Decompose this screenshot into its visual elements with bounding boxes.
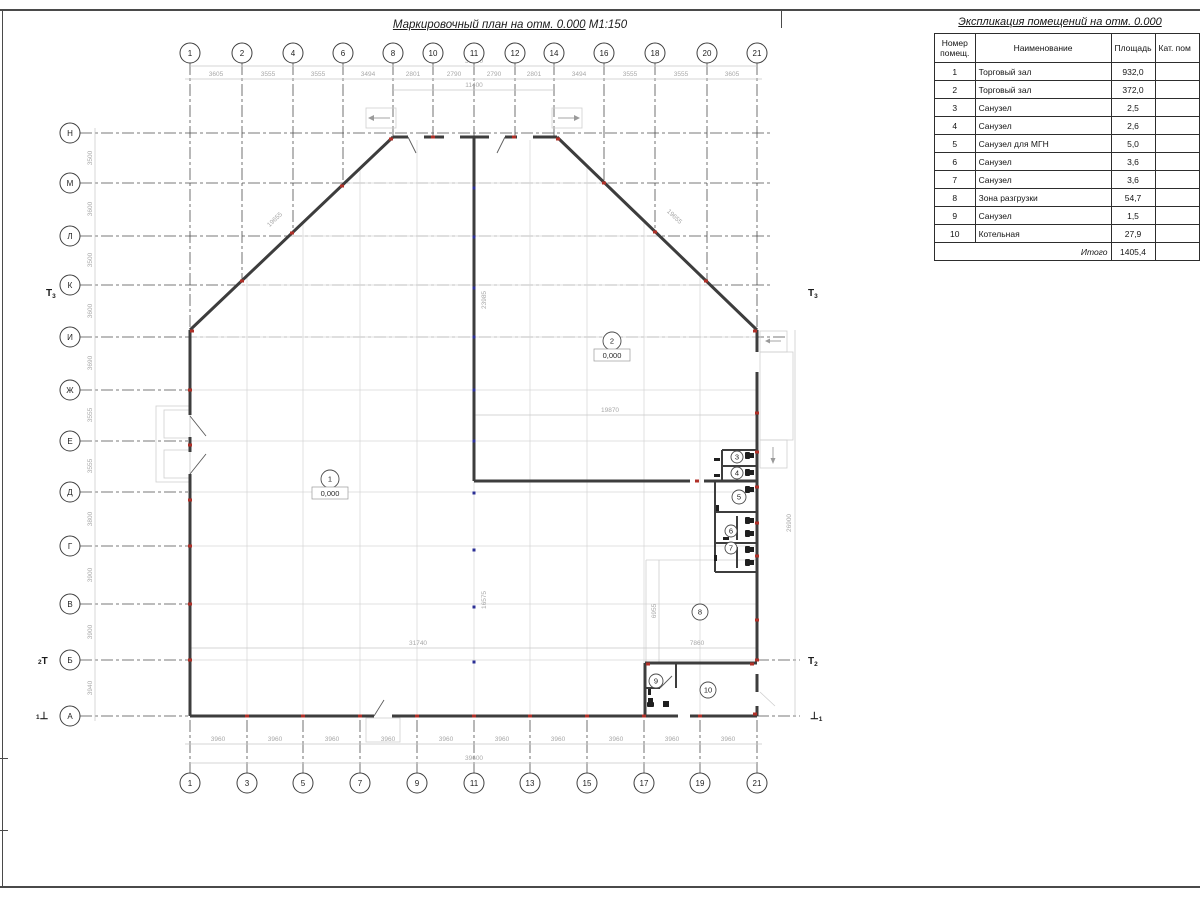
dimension-text: 3960: [495, 736, 510, 743]
marking-point-red: [753, 330, 757, 333]
dimension-text: 3960: [211, 736, 226, 743]
axis-label: 18: [651, 49, 660, 58]
marking-point-red: [290, 232, 294, 235]
room-name-cell: Котельная: [975, 225, 1111, 243]
room-number: 8: [698, 608, 702, 617]
marking-point-red: [750, 663, 754, 666]
marking-point-red: [431, 136, 435, 139]
total-category-cell: [1155, 243, 1199, 261]
marking-point-red: [755, 486, 759, 489]
room-number-cell: 5: [935, 135, 976, 153]
marking-point-red: [188, 444, 192, 447]
elevation-value: 0,000: [321, 489, 340, 498]
dimension-text: 23985: [481, 291, 488, 309]
marking-point-red: [755, 412, 759, 415]
marking-point-red: [755, 659, 759, 662]
dimension-text: 19655: [266, 211, 284, 229]
axis-label: 11: [470, 49, 479, 58]
room-number: 2: [610, 337, 614, 346]
axis-label: К: [68, 281, 73, 290]
sheet-frame-left: [2, 10, 3, 886]
room-number: 10: [704, 686, 712, 695]
room-number: 7: [729, 544, 733, 553]
marking-point-red: [301, 715, 305, 718]
room-number: 6: [729, 527, 733, 536]
marking-point-blue: [473, 492, 476, 495]
axis-label: 12: [511, 49, 520, 58]
dimension-text: 3960: [325, 736, 340, 743]
marking-point-red: [358, 715, 362, 718]
marking-point-blue: [473, 661, 476, 664]
dimension-text: 3600: [87, 201, 94, 216]
room-number-cell: 4: [935, 117, 976, 135]
dimension-text: 3500: [87, 150, 94, 165]
marking-point-blue: [473, 549, 476, 552]
room-area-cell: 3,6: [1111, 153, 1155, 171]
room-category-cell: [1155, 153, 1199, 171]
dimension-text: 3960: [268, 736, 283, 743]
axis-label: 20: [703, 49, 712, 58]
marking-point-red: [755, 555, 759, 558]
explication-table: Номер помещ. Наименование Площадь Кат. п…: [934, 33, 1200, 261]
dimension-text: 3555: [87, 407, 94, 422]
section-mark: 1⊥: [36, 711, 49, 722]
sheet-frame-stub: [781, 10, 782, 28]
dimension-text: 3600: [87, 303, 94, 318]
door-leaf: [723, 537, 729, 540]
axis-label: 21: [753, 49, 762, 58]
marking-point-red: [602, 182, 606, 185]
dimension-text: 26900: [786, 514, 793, 532]
door-swings: [190, 137, 672, 716]
table-row: 3Санузел2,5: [935, 99, 1200, 117]
marking-point-red: [704, 280, 708, 283]
room-area-cell: 3,6: [1111, 171, 1155, 189]
dimension-text: 3960: [609, 736, 624, 743]
table-row: 2Торговый зал372,0: [935, 81, 1200, 99]
floor-plan: 3605355535553494280127902790280134943555…: [0, 0, 840, 900]
room-number: 4: [735, 469, 739, 478]
room-number-cell: 7: [935, 171, 976, 189]
dimension-text: 3800: [87, 511, 94, 526]
axis-label: 14: [550, 49, 559, 58]
marking-point-blue: [473, 287, 476, 290]
elevation-value: 0,000: [603, 351, 622, 360]
room-category-cell: [1155, 207, 1199, 225]
total-label: Итого: [935, 243, 1112, 261]
toilet-icon: [745, 546, 754, 553]
entrance-arrows: [368, 115, 781, 464]
table-row: 7Санузел3,6: [935, 171, 1200, 189]
room-name-cell: Торговый зал: [975, 81, 1111, 99]
room-area-cell: 27,9: [1111, 225, 1155, 243]
dimension-text: 7860: [690, 640, 705, 647]
axis-label: Б: [67, 656, 72, 665]
door-leaf: [714, 555, 717, 561]
plan-scale: М1:150: [589, 19, 627, 31]
table-row: 10Котельная27,9: [935, 225, 1200, 243]
room-category-cell: [1155, 225, 1199, 243]
room-number-cell: 8: [935, 189, 976, 207]
axis-label: 2: [240, 49, 245, 58]
axis-label: А: [67, 712, 73, 721]
col-header-category: Кат. пом: [1155, 34, 1199, 63]
table-total-row: Итого1405,4: [935, 243, 1200, 261]
room-labels: 10,00020,000345678910: [312, 332, 746, 698]
marking-point-red: [188, 545, 192, 548]
toilet-icon: [745, 469, 754, 476]
room-number-cell: 10: [935, 225, 976, 243]
axis-label: Ж: [66, 386, 74, 395]
room-name-cell: Санузел: [975, 99, 1111, 117]
marking-point-red: [698, 715, 702, 718]
table-row: 8Зона разгрузки54,7: [935, 189, 1200, 207]
marking-point-red: [340, 185, 344, 188]
section-mark: Т2: [808, 656, 818, 668]
dimension-text: 3940: [87, 680, 94, 695]
dimension-text: 39600: [465, 755, 483, 762]
marking-point-red: [528, 715, 532, 718]
dimension-text: 3960: [721, 736, 736, 743]
section-mark: Т3: [808, 288, 818, 300]
marking-point-red: [755, 451, 759, 454]
dimension-text: 3494: [361, 71, 376, 78]
marking-point-red: [642, 715, 646, 718]
room-area-cell: 54,7: [1111, 189, 1155, 207]
axis-label: Н: [67, 129, 73, 138]
dimension-text: 3960: [439, 736, 454, 743]
dimension-text: 3960: [551, 736, 566, 743]
axis-label: 17: [640, 779, 649, 788]
axis-label: 1: [188, 779, 193, 788]
plan-title-text: Маркировочный план на отм. 0.000: [393, 19, 586, 31]
room-number-cell: 6: [935, 153, 976, 171]
marking-point-red: [556, 138, 560, 141]
dimension-text: 3555: [311, 71, 326, 78]
axis-label: 8: [391, 49, 396, 58]
dimension-text: 3555: [261, 71, 276, 78]
marking-point-red: [755, 619, 759, 622]
axis-label: 10: [429, 49, 438, 58]
toilet-icon: [745, 517, 754, 524]
marking-point-red: [472, 715, 476, 718]
marking-point-red: [245, 715, 249, 718]
axis-label: Е: [67, 437, 72, 446]
axis-label: 16: [600, 49, 609, 58]
dimension-text: 2801: [406, 71, 421, 78]
room-number: 5: [737, 493, 741, 502]
sheet-frame-tick: [0, 830, 8, 831]
room-area-cell: 372,0: [1111, 81, 1155, 99]
table-row: 9Санузел1,5: [935, 207, 1200, 225]
table-row: 6Санузел3,6: [935, 153, 1200, 171]
drawing-sheet: Маркировочный план на отм. 0.000 М1:150: [0, 0, 1200, 900]
marking-point-red: [389, 138, 393, 141]
axis-label: 13: [526, 779, 535, 788]
room-area-cell: 2,6: [1111, 117, 1155, 135]
toilet-icon: [647, 698, 654, 707]
room-category-cell: [1155, 99, 1199, 117]
table-row: 1Торговый зал932,0: [935, 63, 1200, 81]
toilet-icon: [745, 559, 754, 566]
axis-label: 1: [188, 49, 193, 58]
marking-point-red: [646, 663, 650, 666]
sheet-frame-bottom: [0, 886, 1200, 888]
sheet-frame-tick: [0, 758, 8, 759]
door-leaf: [714, 458, 720, 461]
axis-label: И: [67, 333, 73, 342]
dimension-text: 3960: [665, 736, 680, 743]
col-header-number: Номер помещ.: [935, 34, 976, 63]
explication-title: Экспликация помещений на отм. 0.000: [934, 16, 1186, 28]
door-leaf: [714, 474, 720, 477]
marking-point-blue: [473, 336, 476, 339]
dimension-text: 19870: [601, 407, 619, 414]
section-mark: Т3: [46, 288, 56, 300]
dimension-text: 2790: [487, 71, 502, 78]
dimension-text: 2790: [447, 71, 462, 78]
room-name-cell: Санузел: [975, 117, 1111, 135]
dimension-texts: 3605355535553494280127902790280134943555…: [87, 58, 793, 762]
axis-label: 5: [301, 779, 306, 788]
marking-point-blue: [473, 389, 476, 392]
axis-label: 7: [358, 779, 363, 788]
door-leaf: [716, 505, 719, 511]
axis-grid: [80, 63, 800, 773]
axis-label: 15: [583, 779, 592, 788]
marking-point-red: [755, 522, 759, 525]
room-category-cell: [1155, 189, 1199, 207]
marking-point-red: [653, 231, 657, 234]
dimension-text: 11400: [465, 82, 483, 89]
room-number-cell: 3: [935, 99, 976, 117]
marking-point-red: [190, 330, 194, 333]
axis-label: 4: [291, 49, 296, 58]
room-area-cell: 1,5: [1111, 207, 1155, 225]
room-category-cell: [1155, 117, 1199, 135]
room-number: 3: [735, 453, 739, 462]
room-number-cell: 9: [935, 207, 976, 225]
axis-label: 19: [696, 779, 705, 788]
toilet-icon: [745, 486, 754, 493]
marking-point-red: [415, 715, 419, 718]
room-number-cell: 1: [935, 63, 976, 81]
room-number: 1: [328, 475, 332, 484]
room-name-cell: Санузел: [975, 171, 1111, 189]
toilet-icon: [745, 530, 754, 537]
dimension-text: 2801: [527, 71, 542, 78]
dimension-text: 3605: [725, 71, 740, 78]
room-area-cell: 932,0: [1111, 63, 1155, 81]
room-area-cell: 2,5: [1111, 99, 1155, 117]
axis-label: Д: [67, 488, 73, 497]
axis-label: М: [67, 179, 74, 188]
room-name-cell: Зона разгрузки: [975, 189, 1111, 207]
explication-panel: Экспликация помещений на отм. 0.000 Номе…: [934, 16, 1200, 261]
dimension-text: 3555: [674, 71, 689, 78]
dimension-text: 3900: [87, 567, 94, 582]
table-row: 5Санузел для МГН5,0: [935, 135, 1200, 153]
room-name-cell: Торговый зал: [975, 63, 1111, 81]
dimension-lines: [95, 66, 795, 763]
axis-label: В: [67, 600, 72, 609]
dimension-text: 6955: [651, 603, 658, 618]
marking-point-red: [188, 603, 192, 606]
room-name-cell: Санузел: [975, 153, 1111, 171]
section-mark: ⊥1: [810, 711, 823, 723]
room-area-cell: 5,0: [1111, 135, 1155, 153]
axis-label: Л: [67, 232, 72, 241]
plan-title: Маркировочный план на отм. 0.000 М1:150: [350, 19, 670, 31]
marking-point-blue: [473, 187, 476, 190]
marking-point-blue: [473, 440, 476, 443]
toilet-icon: [745, 452, 754, 459]
dimension-text: 3690: [87, 355, 94, 370]
marking-point-blue: [473, 236, 476, 239]
total-value: 1405,4: [1111, 243, 1155, 261]
room-category-cell: [1155, 63, 1199, 81]
room-number: 9: [654, 677, 658, 686]
room-name-cell: Санузел для МГН: [975, 135, 1111, 153]
dimension-text: 3494: [572, 71, 587, 78]
dimension-text: 19655: [665, 208, 683, 226]
axis-label: 11: [470, 779, 479, 788]
axis-label: 9: [415, 779, 420, 788]
axis-label: 21: [753, 779, 762, 788]
door-leaf: [648, 689, 651, 695]
marking-point-blue: [473, 606, 476, 609]
marking-point-red: [512, 136, 516, 139]
dimension-text: 3960: [381, 736, 396, 743]
room-category-cell: [1155, 81, 1199, 99]
dimension-text: 3555: [623, 71, 638, 78]
col-header-area: Площадь: [1111, 34, 1155, 63]
table-header-row: Номер помещ. Наименование Площадь Кат. п…: [935, 34, 1200, 63]
axis-label: Г: [68, 542, 73, 551]
dimension-text: 3605: [209, 71, 224, 78]
room-number-cell: 2: [935, 81, 976, 99]
marking-point-red: [585, 715, 589, 718]
sink-icon: [663, 701, 669, 707]
dimension-text: 3500: [87, 252, 94, 267]
section-mark: 2Т: [38, 656, 48, 667]
section-marks: Т32Т1⊥Т3Т2⊥1: [36, 288, 823, 723]
table-row: 4Санузел2,6: [935, 117, 1200, 135]
dimension-text: 3900: [87, 624, 94, 639]
marking-point-red: [240, 280, 244, 283]
dimension-text: 3555: [87, 458, 94, 473]
room-category-cell: [1155, 135, 1199, 153]
marking-point-red: [188, 389, 192, 392]
axis-label: 6: [341, 49, 346, 58]
marking-point-red: [695, 480, 699, 483]
marking-point-red: [753, 713, 757, 716]
dimension-text: 31740: [409, 640, 427, 647]
marking-point-red: [188, 659, 192, 662]
sheet-frame-top: [0, 9, 1200, 11]
dimension-text: 16575: [481, 591, 488, 609]
axis-label: 3: [245, 779, 250, 788]
room-category-cell: [1155, 171, 1199, 189]
col-header-name: Наименование: [975, 34, 1111, 63]
room-name-cell: Санузел: [975, 207, 1111, 225]
marking-point-red: [188, 499, 192, 502]
